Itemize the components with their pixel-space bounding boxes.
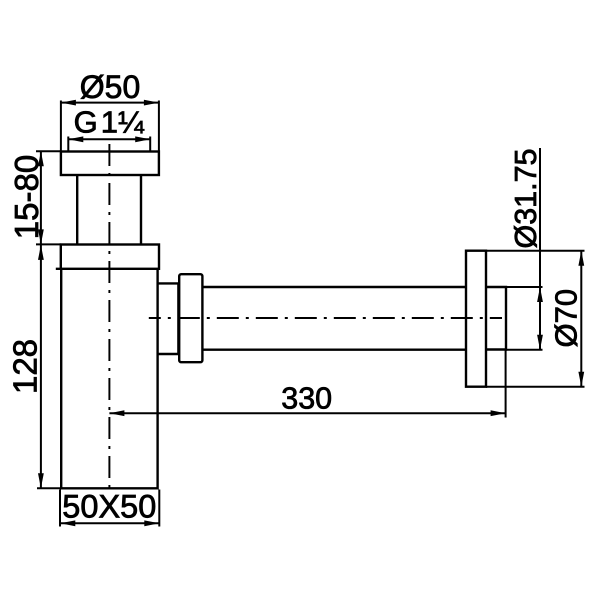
svg-text:G1¼: G1¼ (74, 105, 145, 140)
svg-text:15-80: 15-80 (8, 155, 45, 239)
svg-text:128: 128 (7, 339, 44, 394)
svg-text:330: 330 (281, 382, 332, 416)
svg-text:Ø70: Ø70 (549, 289, 584, 348)
svg-text:Ø31.75: Ø31.75 (509, 148, 543, 248)
svg-text:Ø50: Ø50 (80, 69, 140, 105)
svg-text:50X50: 50X50 (62, 489, 156, 525)
